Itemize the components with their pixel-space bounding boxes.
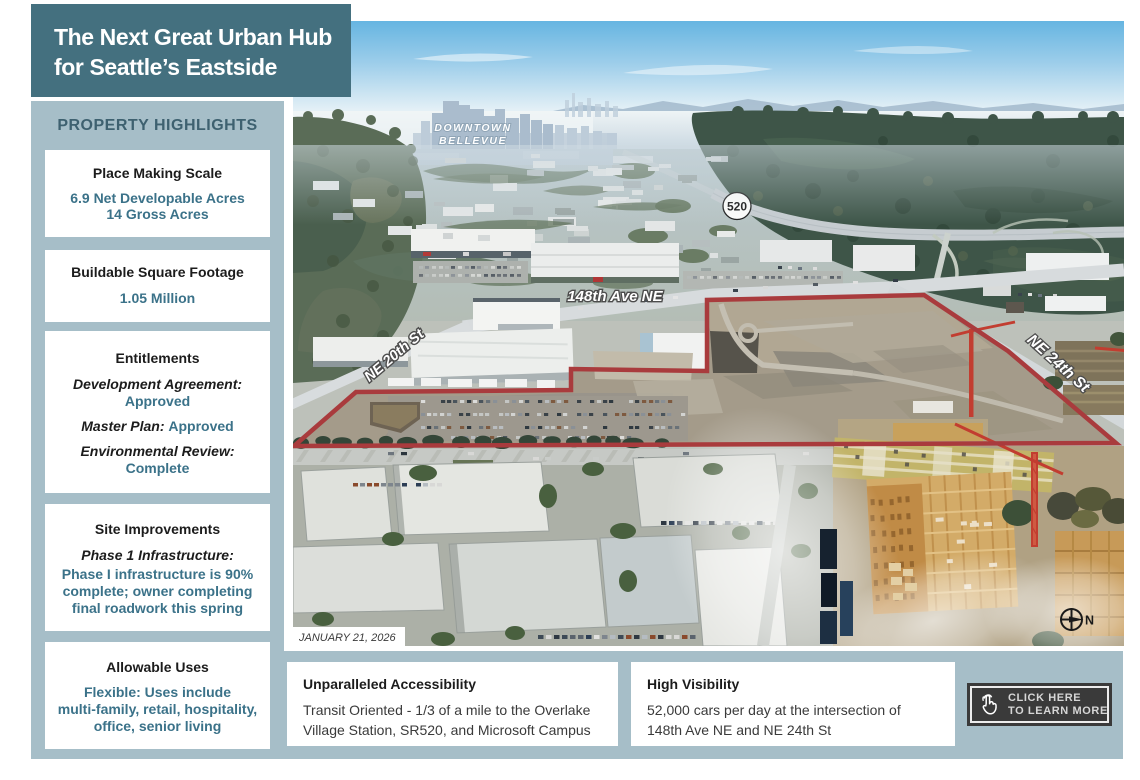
svg-text:148th Ave NE: 148th Ave NE [567, 288, 663, 305]
svg-text:JANUARY 21, 2026: JANUARY 21, 2026 [298, 632, 396, 644]
svg-text:BELLEVUE: BELLEVUE [439, 135, 507, 147]
svg-text:DOWNTOWN: DOWNTOWN [434, 122, 511, 134]
svg-text:N: N [1085, 614, 1094, 628]
